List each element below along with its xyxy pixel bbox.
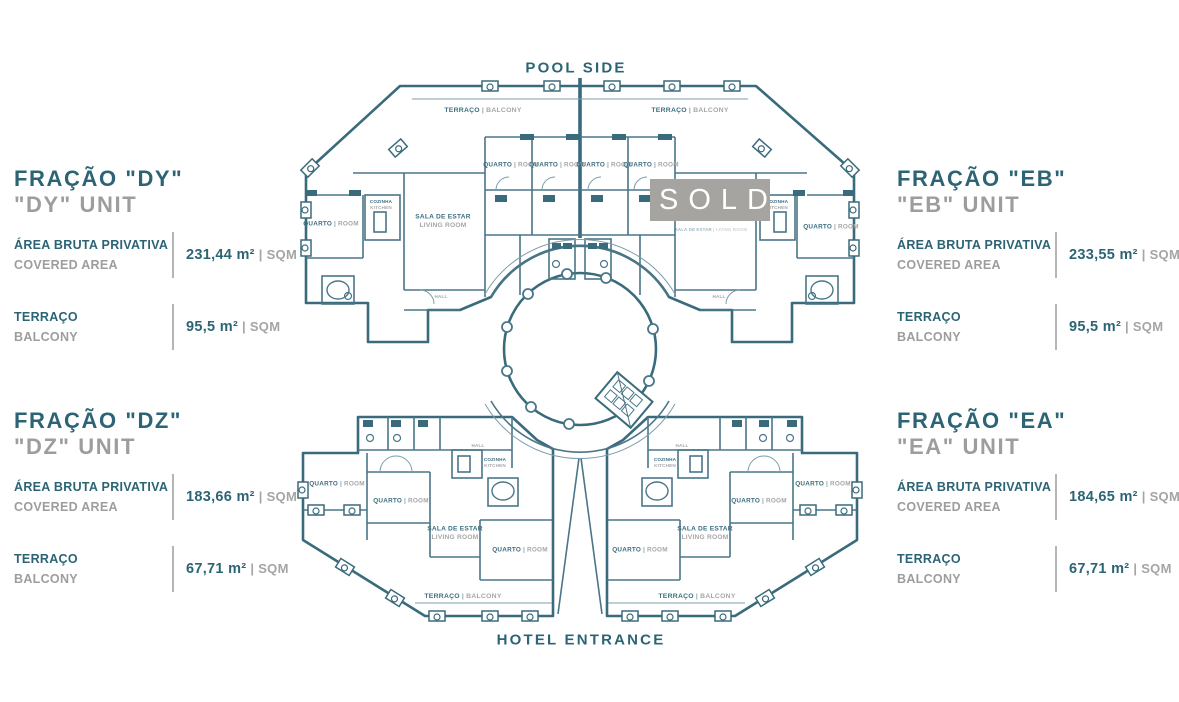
unit-panel-dy: FRAÇÃO "DY" "DY" UNIT ÁREA BRUTA PRIVATI… — [14, 166, 300, 350]
spec-value: 231,44 m² — [186, 247, 255, 263]
room-label: TERRAÇO | BALCONY — [651, 106, 728, 115]
spec-label-pt: TERRAÇO — [14, 549, 172, 569]
divider — [172, 232, 174, 278]
sold-banner: SOLD — [650, 179, 770, 221]
unit-subtitle: "EA" UNIT — [897, 434, 1179, 460]
spec-label-pt: TERRAÇO — [14, 307, 172, 327]
room-label: COZINHAKITCHEN — [370, 199, 392, 211]
spec-label-pt: ÁREA BRUTA PRIVATIVA — [14, 235, 172, 255]
spec-label-pt: ÁREA BRUTA PRIVATIVA — [14, 477, 172, 497]
spec-label-en: BALCONY — [897, 569, 1055, 589]
spec-value: 95,5 m² — [1069, 319, 1121, 335]
room-label: HALL — [435, 294, 448, 300]
spec-row-balcony: TERRAÇO BALCONY 67,71 m² | SQM — [14, 546, 300, 592]
room-label: QUARTO | ROOM — [731, 497, 787, 505]
spec-row-covered-area: ÁREA BRUTA PRIVATIVA COVERED AREA 184,65… — [897, 474, 1179, 520]
divider — [172, 546, 174, 592]
spec-row-covered-area: ÁREA BRUTA PRIVATIVA COVERED AREA 231,44… — [14, 232, 300, 278]
spec-label-en: COVERED AREA — [897, 497, 1055, 517]
room-label: SALA DE ESTARLIVING ROOM — [415, 212, 471, 229]
divider — [172, 304, 174, 350]
spec-value: 67,71 m² — [1069, 561, 1129, 577]
spec-row-covered-area: ÁREA BRUTA PRIVATIVA COVERED AREA 233,55… — [897, 232, 1179, 278]
room-label: TERRAÇO | BALCONY — [658, 592, 735, 601]
room-label: QUARTO | ROOM — [803, 223, 859, 231]
spec-unit: | SQM — [238, 319, 280, 334]
room-label: QUARTO | ROOM — [492, 546, 548, 554]
spec-unit: | SQM — [1121, 319, 1163, 334]
room-label: TERRAÇO | BALCONY — [424, 592, 501, 601]
unit-title: FRAÇÃO "EA" — [897, 408, 1179, 434]
room-label: SALA DE ESTAR | LIVING ROOM — [675, 227, 747, 233]
floor-plan-drawing — [0, 0, 1179, 702]
spec-unit: | SQM — [1138, 489, 1179, 504]
spec-row-balcony: TERRAÇO BALCONY 95,5 m² | SQM — [14, 304, 300, 350]
spec-label-en: COVERED AREA — [897, 255, 1055, 275]
spec-unit: | SQM — [246, 561, 288, 576]
divider — [1055, 232, 1057, 278]
unit-panel-eb: FRAÇÃO "EB" "EB" UNIT ÁREA BRUTA PRIVATI… — [897, 166, 1179, 350]
divider — [1055, 304, 1057, 350]
spec-label-en: BALCONY — [897, 327, 1055, 347]
spec-label-pt: TERRAÇO — [897, 307, 1055, 327]
divider — [1055, 474, 1057, 520]
divider — [1055, 546, 1057, 592]
unit-subtitle: "DY" UNIT — [14, 192, 300, 218]
room-label: COZINHAKITCHEN — [654, 457, 676, 469]
spec-value: 184,65 m² — [1069, 489, 1138, 505]
spec-value: 183,66 m² — [186, 489, 255, 505]
spec-label-en: COVERED AREA — [14, 497, 172, 517]
unit-panel-dz: FRAÇÃO "DZ" "DZ" UNIT ÁREA BRUTA PRIVATI… — [14, 408, 300, 592]
unit-title: FRAÇÃO "DY" — [14, 166, 300, 192]
room-label: QUARTO | ROOM — [623, 161, 679, 169]
spec-unit: | SQM — [1129, 561, 1171, 576]
room-label: TERRAÇO | BALCONY — [444, 106, 521, 115]
room-label: QUARTO | ROOM — [303, 220, 359, 228]
room-label: HALL — [472, 443, 485, 449]
spec-row-balcony: TERRAÇO BALCONY 67,71 m² | SQM — [897, 546, 1179, 592]
spec-unit: | SQM — [1138, 247, 1179, 262]
spec-label-pt: ÁREA BRUTA PRIVATIVA — [897, 235, 1055, 255]
floor-plan-page: POOL SIDE HOTEL ENTRANCE TERRAÇO | BALCO… — [0, 0, 1179, 702]
pool-side-label: POOL SIDE — [525, 60, 626, 77]
unit-title: FRAÇÃO "DZ" — [14, 408, 300, 434]
room-label: QUARTO | ROOM — [309, 480, 365, 488]
spec-label-pt: TERRAÇO — [897, 549, 1055, 569]
unit-title: FRAÇÃO "EB" — [897, 166, 1179, 192]
room-label: QUARTO | ROOM — [373, 497, 429, 505]
spec-label-en: BALCONY — [14, 327, 172, 347]
spec-value: 67,71 m² — [186, 561, 246, 577]
room-label: SALA DE ESTARLIVING ROOM — [677, 524, 733, 541]
spec-value: 95,5 m² — [186, 319, 238, 335]
spec-value: 233,55 m² — [1069, 247, 1138, 263]
unit-subtitle: "EB" UNIT — [897, 192, 1179, 218]
room-label: COZINHAKITCHEN — [484, 457, 506, 469]
room-label: SALA DE ESTARLIVING ROOM — [427, 524, 483, 541]
spec-unit: | SQM — [255, 247, 297, 262]
spec-unit: | SQM — [255, 489, 297, 504]
room-label: QUARTO | ROOM — [612, 546, 668, 554]
divider — [172, 474, 174, 520]
hotel-entrance-label: HOTEL ENTRANCE — [497, 632, 666, 649]
unit-panel-ea: FRAÇÃO "EA" "EA" UNIT ÁREA BRUTA PRIVATI… — [897, 408, 1179, 592]
spec-label-en: COVERED AREA — [14, 255, 172, 275]
room-label: QUARTO | ROOM — [795, 480, 851, 488]
room-label: HALL — [676, 443, 689, 449]
room-label: HALL — [713, 294, 726, 300]
spec-row-balcony: TERRAÇO BALCONY 95,5 m² | SQM — [897, 304, 1179, 350]
spec-row-covered-area: ÁREA BRUTA PRIVATIVA COVERED AREA 183,66… — [14, 474, 300, 520]
unit-subtitle: "DZ" UNIT — [14, 434, 300, 460]
spec-label-en: BALCONY — [14, 569, 172, 589]
spec-label-pt: ÁREA BRUTA PRIVATIVA — [897, 477, 1055, 497]
